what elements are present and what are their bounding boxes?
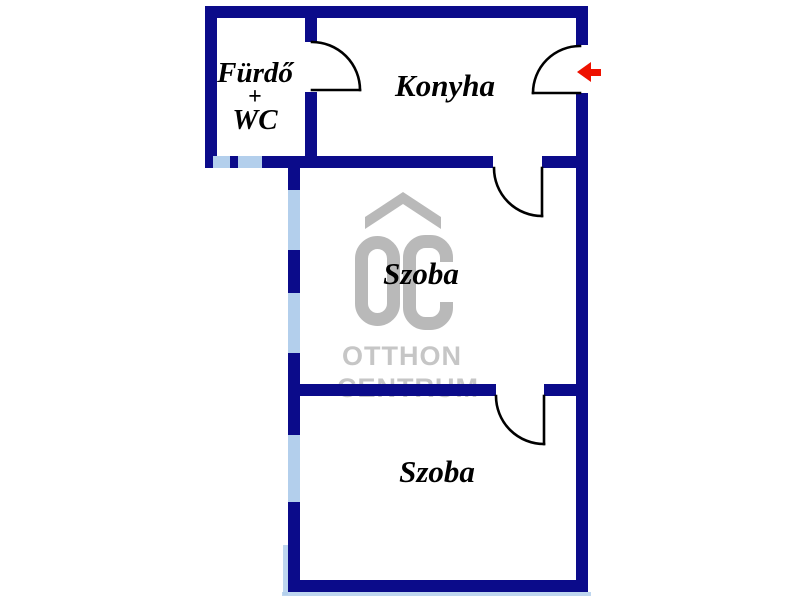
floor-plan: OTTHON CENTRUM Fürdő bbox=[0, 0, 800, 600]
door-arc-kitchen-room1 bbox=[494, 168, 542, 216]
door-arc-entrance bbox=[533, 46, 580, 93]
room-label-room1: Szoba bbox=[351, 258, 491, 291]
door-arc-room1-room2 bbox=[496, 396, 544, 444]
room-label-room2: Szoba bbox=[367, 456, 507, 489]
room-label-bathroom: Fürdő + WC bbox=[207, 58, 303, 134]
bathroom-label-line3: WC bbox=[207, 106, 303, 134]
room-label-kitchen: Konyha bbox=[375, 70, 515, 103]
entrance-arrow-icon bbox=[577, 62, 601, 82]
door-arc-bathroom bbox=[312, 42, 360, 90]
